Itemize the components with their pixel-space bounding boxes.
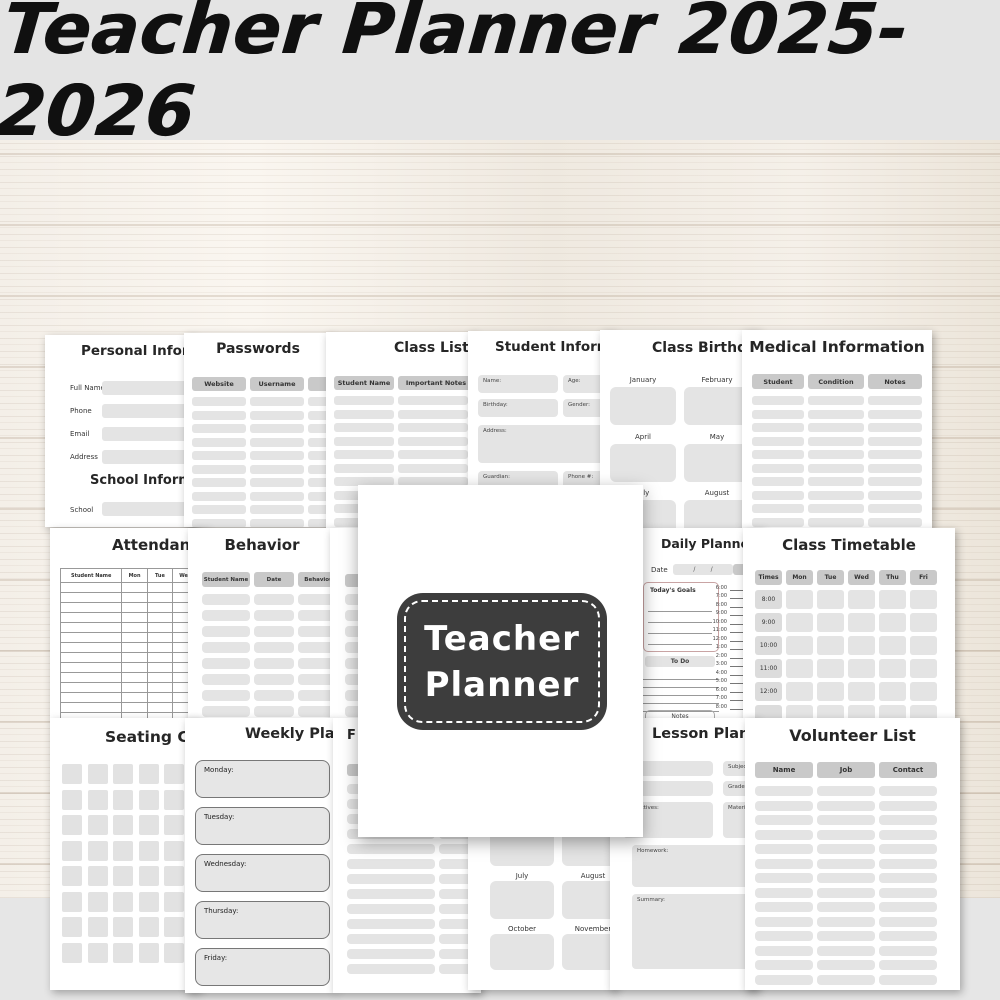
cell: [755, 815, 813, 825]
column-header: Student Name: [202, 572, 250, 587]
column-header: Thu: [879, 570, 906, 585]
field-label: Age:: [568, 378, 581, 384]
seat-cell: [113, 815, 133, 835]
cell: [752, 464, 804, 473]
cell: [868, 491, 922, 500]
seat-cell: [62, 815, 82, 835]
cell: [817, 975, 875, 985]
field-label: School: [70, 506, 93, 514]
cell: [250, 451, 304, 460]
cell: [808, 518, 864, 527]
cell: [910, 659, 937, 678]
table-row: [61, 673, 209, 683]
table-row: [61, 613, 209, 623]
month-box: [490, 881, 554, 919]
month-box: [490, 934, 554, 970]
cell: [817, 844, 875, 854]
month-box: [562, 881, 616, 919]
table-row: [61, 633, 209, 643]
cell: [250, 505, 304, 514]
cell: [755, 873, 813, 883]
page-attendance: Attendance Student Name Mon Tue Wed Thu: [50, 528, 208, 718]
cell: [808, 410, 864, 419]
table-row: [752, 437, 922, 446]
cell: [817, 636, 844, 655]
field-label: Email: [70, 430, 89, 438]
table-row: [755, 917, 937, 927]
cell: [879, 613, 906, 632]
seat-cell: [139, 943, 159, 963]
table-row: [192, 465, 332, 474]
column-header: Tue: [147, 569, 172, 583]
day-boxes: Monday: Tuesday: Wednesday: Thursday: Fr…: [195, 760, 330, 986]
table-row: [61, 653, 209, 663]
page-title: Medical Information: [742, 338, 932, 356]
cell: [254, 594, 294, 605]
cell: [202, 674, 250, 685]
cell: [250, 465, 304, 474]
table-row: [334, 410, 468, 419]
table-row: [61, 703, 209, 713]
seat-cell: [62, 917, 82, 937]
writing-line: [648, 601, 712, 612]
page-title: Volunteer List: [745, 726, 960, 745]
seat-cell: [139, 917, 159, 937]
month-label: February: [684, 376, 750, 384]
writing-line: [643, 680, 719, 688]
cell: [868, 423, 922, 432]
cover-board-border: Teacher Planner: [404, 600, 600, 723]
page-behavior: Behavior Student Name Date Behaviour: [188, 528, 336, 718]
input-bar: [102, 502, 187, 516]
table-row: [347, 934, 481, 944]
field-label: Phone: [70, 407, 92, 415]
table-row: [61, 603, 209, 613]
column-header: Tue: [817, 570, 844, 585]
seat-cell: [164, 841, 184, 861]
seat-cell: [164, 790, 184, 810]
cell: [398, 450, 468, 459]
cell: [879, 815, 937, 825]
cell: [254, 674, 294, 685]
time-cell: 8:00: [755, 590, 782, 609]
table-row: [347, 889, 481, 899]
cell: [254, 658, 294, 669]
cell: [347, 844, 435, 854]
table-row: [61, 683, 209, 693]
cell: [868, 464, 922, 473]
timetable-row: 9:00: [755, 613, 937, 632]
cell: [192, 505, 246, 514]
column-header: Student Name: [334, 376, 394, 390]
column-header: Contact: [879, 762, 937, 778]
cell: [254, 690, 294, 701]
cover-title-line1: Teacher: [424, 619, 580, 659]
cell: [202, 642, 250, 653]
seat-cell: [88, 917, 108, 937]
time-label: 8:00: [711, 704, 727, 710]
cell: [755, 975, 813, 985]
day-box: Wednesday:: [195, 854, 330, 892]
cell: [752, 437, 804, 446]
seat-cell: [62, 892, 82, 912]
cell: [752, 396, 804, 405]
seat-cell: [139, 866, 159, 886]
timetable-row: 10:00: [755, 636, 937, 655]
cell: [808, 477, 864, 486]
table-row: [202, 610, 336, 621]
goals-label: Today's Goals: [650, 587, 696, 594]
cell: [347, 949, 435, 959]
seat-cell: [88, 841, 108, 861]
cell: [808, 491, 864, 500]
cell: [910, 636, 937, 655]
page-medical-information: Medical Information Student Condition No…: [742, 330, 932, 530]
page-weekly-planner: Weekly Planner Monday: Tuesday: Wednesda…: [185, 718, 335, 993]
cell: [250, 438, 304, 447]
cell: [786, 590, 813, 609]
table-row: [202, 706, 336, 717]
field-label: Gender:: [568, 402, 590, 408]
day-label: Tuesday:: [204, 813, 234, 821]
cell: [347, 859, 435, 869]
page-title: Passwords: [184, 341, 332, 357]
page-class-timetable: Class Timetable Times Mon Tue Wed Thu Fr…: [743, 528, 955, 720]
product-image: Teacher Planner 2025-2026 Personal Infor…: [0, 0, 1000, 1000]
cell: [347, 904, 435, 914]
column-header: Name: [755, 762, 813, 778]
field-name: Name:: [478, 375, 558, 393]
cell: [848, 613, 875, 632]
table-row: [192, 492, 332, 501]
table-row: [334, 396, 468, 405]
table-row: [347, 874, 481, 884]
cell: [879, 873, 937, 883]
day-label: Wednesday:: [204, 860, 246, 868]
table-row: [61, 593, 209, 603]
table-rows: [752, 396, 922, 527]
table-row: [752, 518, 922, 527]
cell: [254, 642, 294, 653]
table-row: [755, 786, 937, 796]
cell: [202, 626, 250, 637]
page-personal-information: Personal Information Full Name Phone Ema…: [45, 335, 195, 527]
writing-line: [643, 688, 719, 696]
cell: [817, 946, 875, 956]
table-row: [202, 674, 336, 685]
cell: [786, 636, 813, 655]
cell: [879, 859, 937, 869]
table-row: [334, 464, 468, 473]
table-row: [755, 975, 937, 985]
cell: [848, 590, 875, 609]
seat-cell: [88, 764, 108, 784]
cell: [879, 888, 937, 898]
field-label: Address: [70, 453, 98, 461]
month-box: [610, 387, 676, 425]
day-label: Friday:: [204, 954, 227, 962]
cell: [868, 396, 922, 405]
cell: [786, 613, 813, 632]
input-bar: [102, 427, 187, 441]
timetable-row: 8:00: [755, 590, 937, 609]
month-box: [684, 444, 750, 482]
column-header: Job: [817, 762, 875, 778]
table-row: [61, 663, 209, 673]
cell: [752, 504, 804, 513]
cell: [868, 410, 922, 419]
cell: [347, 874, 435, 884]
table-row: [752, 450, 922, 459]
seat-cell: [88, 943, 108, 963]
table-row: [202, 626, 336, 637]
cell: [879, 902, 937, 912]
cell: [817, 960, 875, 970]
seat-cell: [139, 815, 159, 835]
cell: [817, 888, 875, 898]
cell: [879, 844, 937, 854]
table-row: [752, 464, 922, 473]
month-label: July: [490, 872, 554, 880]
cell: [398, 423, 468, 432]
header-row: Student Name Mon Tue Wed Thu: [61, 569, 209, 583]
cell: [347, 934, 435, 944]
cell: [347, 889, 435, 899]
table-row: [755, 946, 937, 956]
cell: [755, 902, 813, 912]
cell: [202, 658, 250, 669]
field-birthday: Birthday:: [478, 399, 558, 417]
page-title: Lesson Plan: [652, 726, 749, 742]
cell: [250, 397, 304, 406]
todo-header: To Do: [645, 656, 715, 667]
table-row: [755, 815, 937, 825]
column-header: Important Notes: [398, 376, 474, 390]
table-row: [192, 519, 332, 528]
cell: [879, 931, 937, 941]
cell: [817, 590, 844, 609]
month-label: August: [684, 489, 750, 497]
day-label: Monday:: [204, 766, 233, 774]
column-header: Date: [254, 572, 294, 587]
cell: [755, 786, 813, 796]
column-header: Times: [755, 570, 782, 585]
cell: [868, 477, 922, 486]
cell: [192, 519, 246, 528]
column-header: Website: [192, 377, 246, 391]
writing-line: [643, 696, 719, 704]
seat-cell: [113, 841, 133, 861]
table-row: [202, 690, 336, 701]
cell: [910, 590, 937, 609]
cell: [817, 902, 875, 912]
cell: [202, 706, 250, 717]
input-bar: [102, 381, 187, 395]
cell: [755, 830, 813, 840]
cell: [755, 888, 813, 898]
month-label: October: [490, 925, 554, 933]
time-cell: 11:00: [755, 659, 782, 678]
table-row: [755, 873, 937, 883]
field-label: Name:: [483, 378, 501, 384]
seat-cell: [62, 866, 82, 886]
cell: [752, 450, 804, 459]
date-value: / /: [673, 564, 733, 575]
cell: [910, 613, 937, 632]
table-row: [347, 919, 481, 929]
column-header: Mon: [122, 569, 147, 583]
table-row: [755, 888, 937, 898]
table-row: [755, 844, 937, 854]
cell: [817, 682, 844, 701]
seat-cell: [88, 815, 108, 835]
table-row: [202, 658, 336, 669]
writing-line: [648, 634, 712, 645]
timetable-row: 11:00: [755, 659, 937, 678]
cell: [202, 594, 250, 605]
cell: [752, 423, 804, 432]
page-title: Weekly Planner: [245, 726, 335, 742]
day-box: Thursday:: [195, 901, 330, 939]
cell: [910, 682, 937, 701]
seat-cell: [164, 764, 184, 784]
cell: [879, 659, 906, 678]
cell: [879, 975, 937, 985]
cell: [752, 518, 804, 527]
cell: [817, 613, 844, 632]
seat-cell: [139, 841, 159, 861]
cell: [398, 396, 468, 405]
table-row: [752, 410, 922, 419]
table-rows: [755, 786, 937, 985]
cell: [250, 492, 304, 501]
cell: [848, 659, 875, 678]
table-row: [755, 830, 937, 840]
cell: [202, 690, 250, 701]
cell: [250, 478, 304, 487]
table-row: [755, 801, 937, 811]
date-label: Date: [651, 566, 668, 574]
cell: [752, 410, 804, 419]
table-row: [752, 504, 922, 513]
table-row: [755, 859, 937, 869]
cell: [868, 518, 922, 527]
cell: [817, 659, 844, 678]
page-passwords: Passwords Website Username: [184, 333, 332, 527]
table-row: [347, 859, 481, 869]
attendance-table: Student Name Mon Tue Wed Thu: [60, 568, 208, 718]
month-label: April: [610, 433, 676, 441]
table-row: [192, 411, 332, 420]
month-label: May: [684, 433, 750, 441]
wood-background: Personal Information Full Name Phone Ema…: [0, 140, 1000, 898]
seat-cell: [62, 841, 82, 861]
cell: [752, 477, 804, 486]
writing-line: [648, 623, 712, 634]
table-row: [202, 642, 336, 653]
cell: [752, 491, 804, 500]
month-label: August: [562, 872, 616, 880]
cover-title-line2: Planner: [425, 665, 580, 705]
seat-cell: [113, 917, 133, 937]
seat-cell: [113, 790, 133, 810]
month-box: [610, 444, 676, 482]
column-header: Condition: [808, 374, 864, 389]
page-title: Behavior: [188, 536, 336, 554]
cell: [808, 437, 864, 446]
seat-cell: [62, 790, 82, 810]
table-row: [202, 594, 336, 605]
cell: [755, 844, 813, 854]
cell: [334, 464, 394, 473]
seat-cell: [139, 764, 159, 784]
cell: [192, 465, 246, 474]
seat-cell: [139, 790, 159, 810]
cell: [398, 437, 468, 446]
input-bar: [102, 450, 187, 464]
cell: [879, 960, 937, 970]
cell: [192, 492, 246, 501]
seat-cell: [88, 790, 108, 810]
cell: [755, 960, 813, 970]
top-banner: Teacher Planner 2025-2026: [0, 0, 1000, 140]
seat-cell: [113, 943, 133, 963]
cell: [879, 682, 906, 701]
cell: [334, 396, 394, 405]
cell: [202, 610, 250, 621]
field-label: Grade:: [728, 784, 747, 790]
cell: [817, 815, 875, 825]
cell: [879, 590, 906, 609]
page-title: F: [347, 728, 356, 743]
cover-board: Teacher Planner: [397, 593, 607, 730]
cell: [879, 801, 937, 811]
page-seating-chart: Seating Chart: [50, 718, 200, 990]
page-title: Class List: [394, 340, 469, 356]
cell: [817, 786, 875, 796]
table-row: [752, 491, 922, 500]
table-row: [61, 693, 209, 703]
writing-line: [648, 612, 712, 623]
cell: [254, 610, 294, 621]
timetable-header-row: Times Mon Tue Wed Thu Fri: [755, 570, 937, 585]
column-header: Fri: [910, 570, 937, 585]
time-cell: 10:00: [755, 636, 782, 655]
cell: [254, 706, 294, 717]
writing-line: [643, 672, 719, 680]
cell: [848, 682, 875, 701]
seat-cell: [113, 866, 133, 886]
table-row: [755, 931, 937, 941]
cell: [817, 801, 875, 811]
field-label: Full Name: [70, 384, 105, 392]
table-rows: [202, 594, 336, 717]
cell: [192, 411, 246, 420]
cell: [192, 478, 246, 487]
table-row: [334, 450, 468, 459]
cell: [879, 786, 937, 796]
day-box: Monday:: [195, 760, 330, 798]
table-row: [755, 960, 937, 970]
seat-cell: [164, 917, 184, 937]
table-row: [334, 437, 468, 446]
cell: [817, 859, 875, 869]
timetable-body: 8:00 9:00 10:00: [755, 590, 937, 701]
field-label: Address:: [483, 428, 507, 434]
cell: [808, 450, 864, 459]
cell: [250, 411, 304, 420]
field-label: Phone #:: [568, 474, 593, 480]
